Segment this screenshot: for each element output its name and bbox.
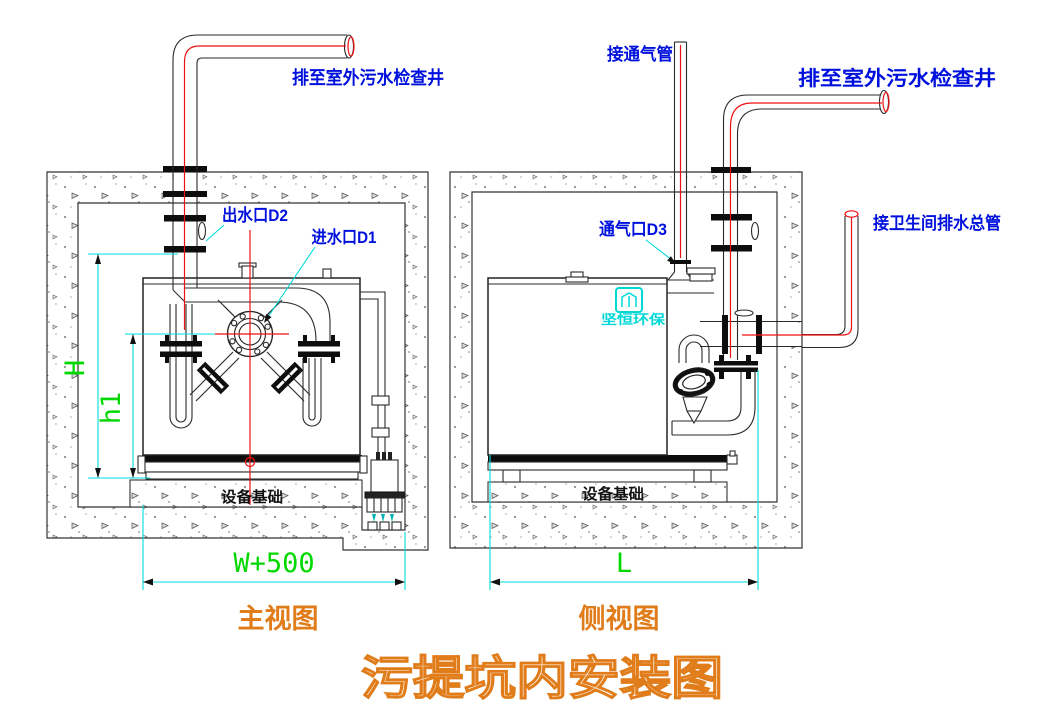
label-foundation-front: 设备基础 [221, 488, 283, 506]
drawing-page: H h1 W+500 排至室外污水检查井 出水口D2 进水口D1 设备基础 主视… [0, 0, 1041, 713]
caption-side-view: 侧视图 [579, 604, 660, 634]
tank-top-fitting [323, 269, 331, 278]
page-title: 污提坑内安装图 [361, 652, 723, 704]
label-vent-pipe: 接通气管 [607, 44, 673, 64]
label-inlet-d1: 进水口D1 [312, 227, 377, 247]
label-drain-well-front: 排至室外污水检查井 [292, 67, 444, 88]
label-toilet-main: 接卫生间排水总管 [873, 213, 1001, 233]
valve-handwheel [752, 223, 759, 240]
dim-H: H [60, 360, 91, 376]
logo-text: 坚恒环保 [601, 312, 666, 327]
label-outlet-d2: 出水口D2 [222, 205, 288, 225]
dim-L: L [616, 548, 632, 579]
valve-handwheel [199, 223, 206, 240]
caption-front-view: 主视图 [238, 604, 319, 634]
label-foundation-side: 设备基础 [582, 485, 644, 503]
installation-drawing: H h1 W+500 排至室外污水检查井 出水口D2 进水口D1 设备基础 主视… [0, 0, 1041, 713]
dim-W500: W+500 [233, 548, 314, 579]
dim-h1: h1 [96, 392, 127, 425]
label-vent-port-d3: 通气口D3 [599, 219, 667, 239]
tank-manhole [566, 277, 588, 282]
label-drain-well-side: 排至室外污水检查井 [798, 66, 996, 90]
